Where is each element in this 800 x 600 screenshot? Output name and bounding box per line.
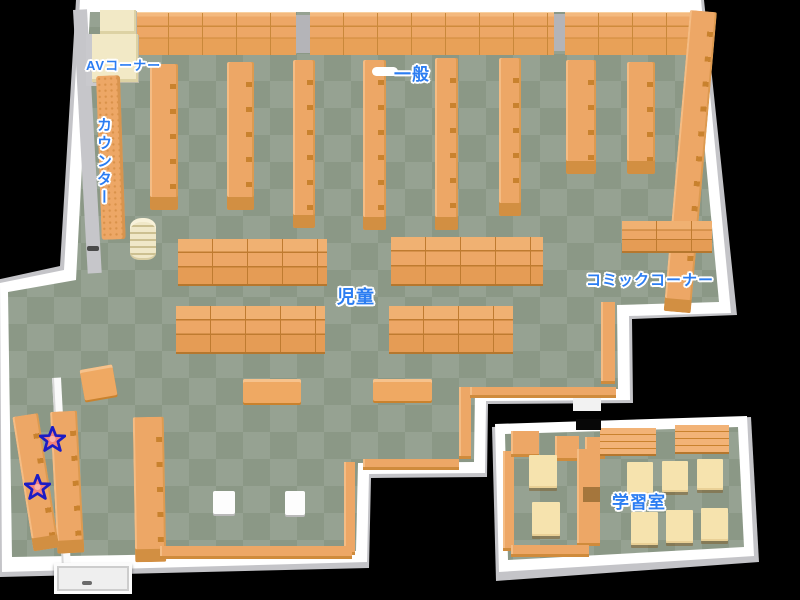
wall-bookshelf-row — [565, 12, 691, 55]
low-bookshelf — [389, 306, 513, 352]
label-study-room: 学習室 — [612, 488, 666, 513]
study-desk — [701, 508, 728, 541]
bookshelf — [499, 58, 521, 216]
study-desk — [532, 502, 560, 536]
label-counter: カウンター — [93, 117, 114, 213]
top-wall-doorway — [553, 14, 565, 51]
tilted-table — [80, 364, 118, 400]
bookshelf — [566, 60, 596, 174]
wall-shelf — [470, 387, 616, 398]
library-floor-map: AVコーナー 一般 カウンター 児童 コミックコーナー 学習室 — [0, 0, 800, 600]
wall-shelf — [344, 462, 355, 555]
study-partition-gap — [583, 487, 600, 502]
star-marker-icon[interactable] — [24, 474, 51, 501]
bookshelf — [150, 64, 178, 210]
study-desk — [631, 512, 658, 545]
entrance-handle — [82, 581, 92, 585]
bookshelf — [363, 60, 386, 230]
counter-mark — [87, 246, 99, 251]
reading-table — [373, 379, 432, 401]
low-bookshelf — [176, 306, 325, 352]
star-marker-icon[interactable] — [39, 426, 66, 453]
study-shelf — [555, 436, 579, 461]
low-bookshelf — [391, 237, 543, 284]
passage-wall-stub — [573, 398, 601, 411]
wall-bookshelf-row — [135, 12, 296, 55]
bookshelf — [435, 58, 458, 230]
bookshelf — [627, 62, 655, 174]
study-desk — [666, 510, 693, 543]
display-cylinder — [130, 218, 156, 260]
top-wall-doorway — [296, 15, 310, 53]
bookshelf — [133, 417, 167, 563]
av-shelf — [100, 10, 136, 34]
reading-table — [243, 379, 301, 403]
label-comic-corner: コミックコーナー — [586, 269, 714, 290]
entrance-door[interactable] — [54, 563, 132, 594]
study-desk — [697, 459, 723, 490]
wall-shelf — [160, 546, 352, 559]
study-bookshelf — [600, 428, 656, 454]
study-shelf — [511, 431, 539, 457]
study-desk — [529, 455, 557, 488]
white-table — [285, 491, 305, 515]
study-wall-shelf — [511, 545, 589, 557]
wall-bookshelf-row — [310, 12, 554, 55]
wall-shelf — [601, 302, 615, 384]
label-children: 児童 — [337, 283, 375, 309]
low-bookshelf — [178, 239, 327, 284]
study-wall-shelf — [503, 451, 514, 551]
bookshelf — [293, 60, 315, 228]
study-doorway — [576, 419, 601, 430]
label-av-corner: AVコーナー — [86, 55, 161, 74]
study-bookshelf — [675, 425, 729, 452]
bookshelf — [227, 62, 254, 210]
white-table — [213, 491, 235, 514]
label-general: 一般 — [394, 60, 430, 85]
comic-corner-shelf — [622, 221, 712, 251]
wall-shelf — [363, 459, 459, 470]
